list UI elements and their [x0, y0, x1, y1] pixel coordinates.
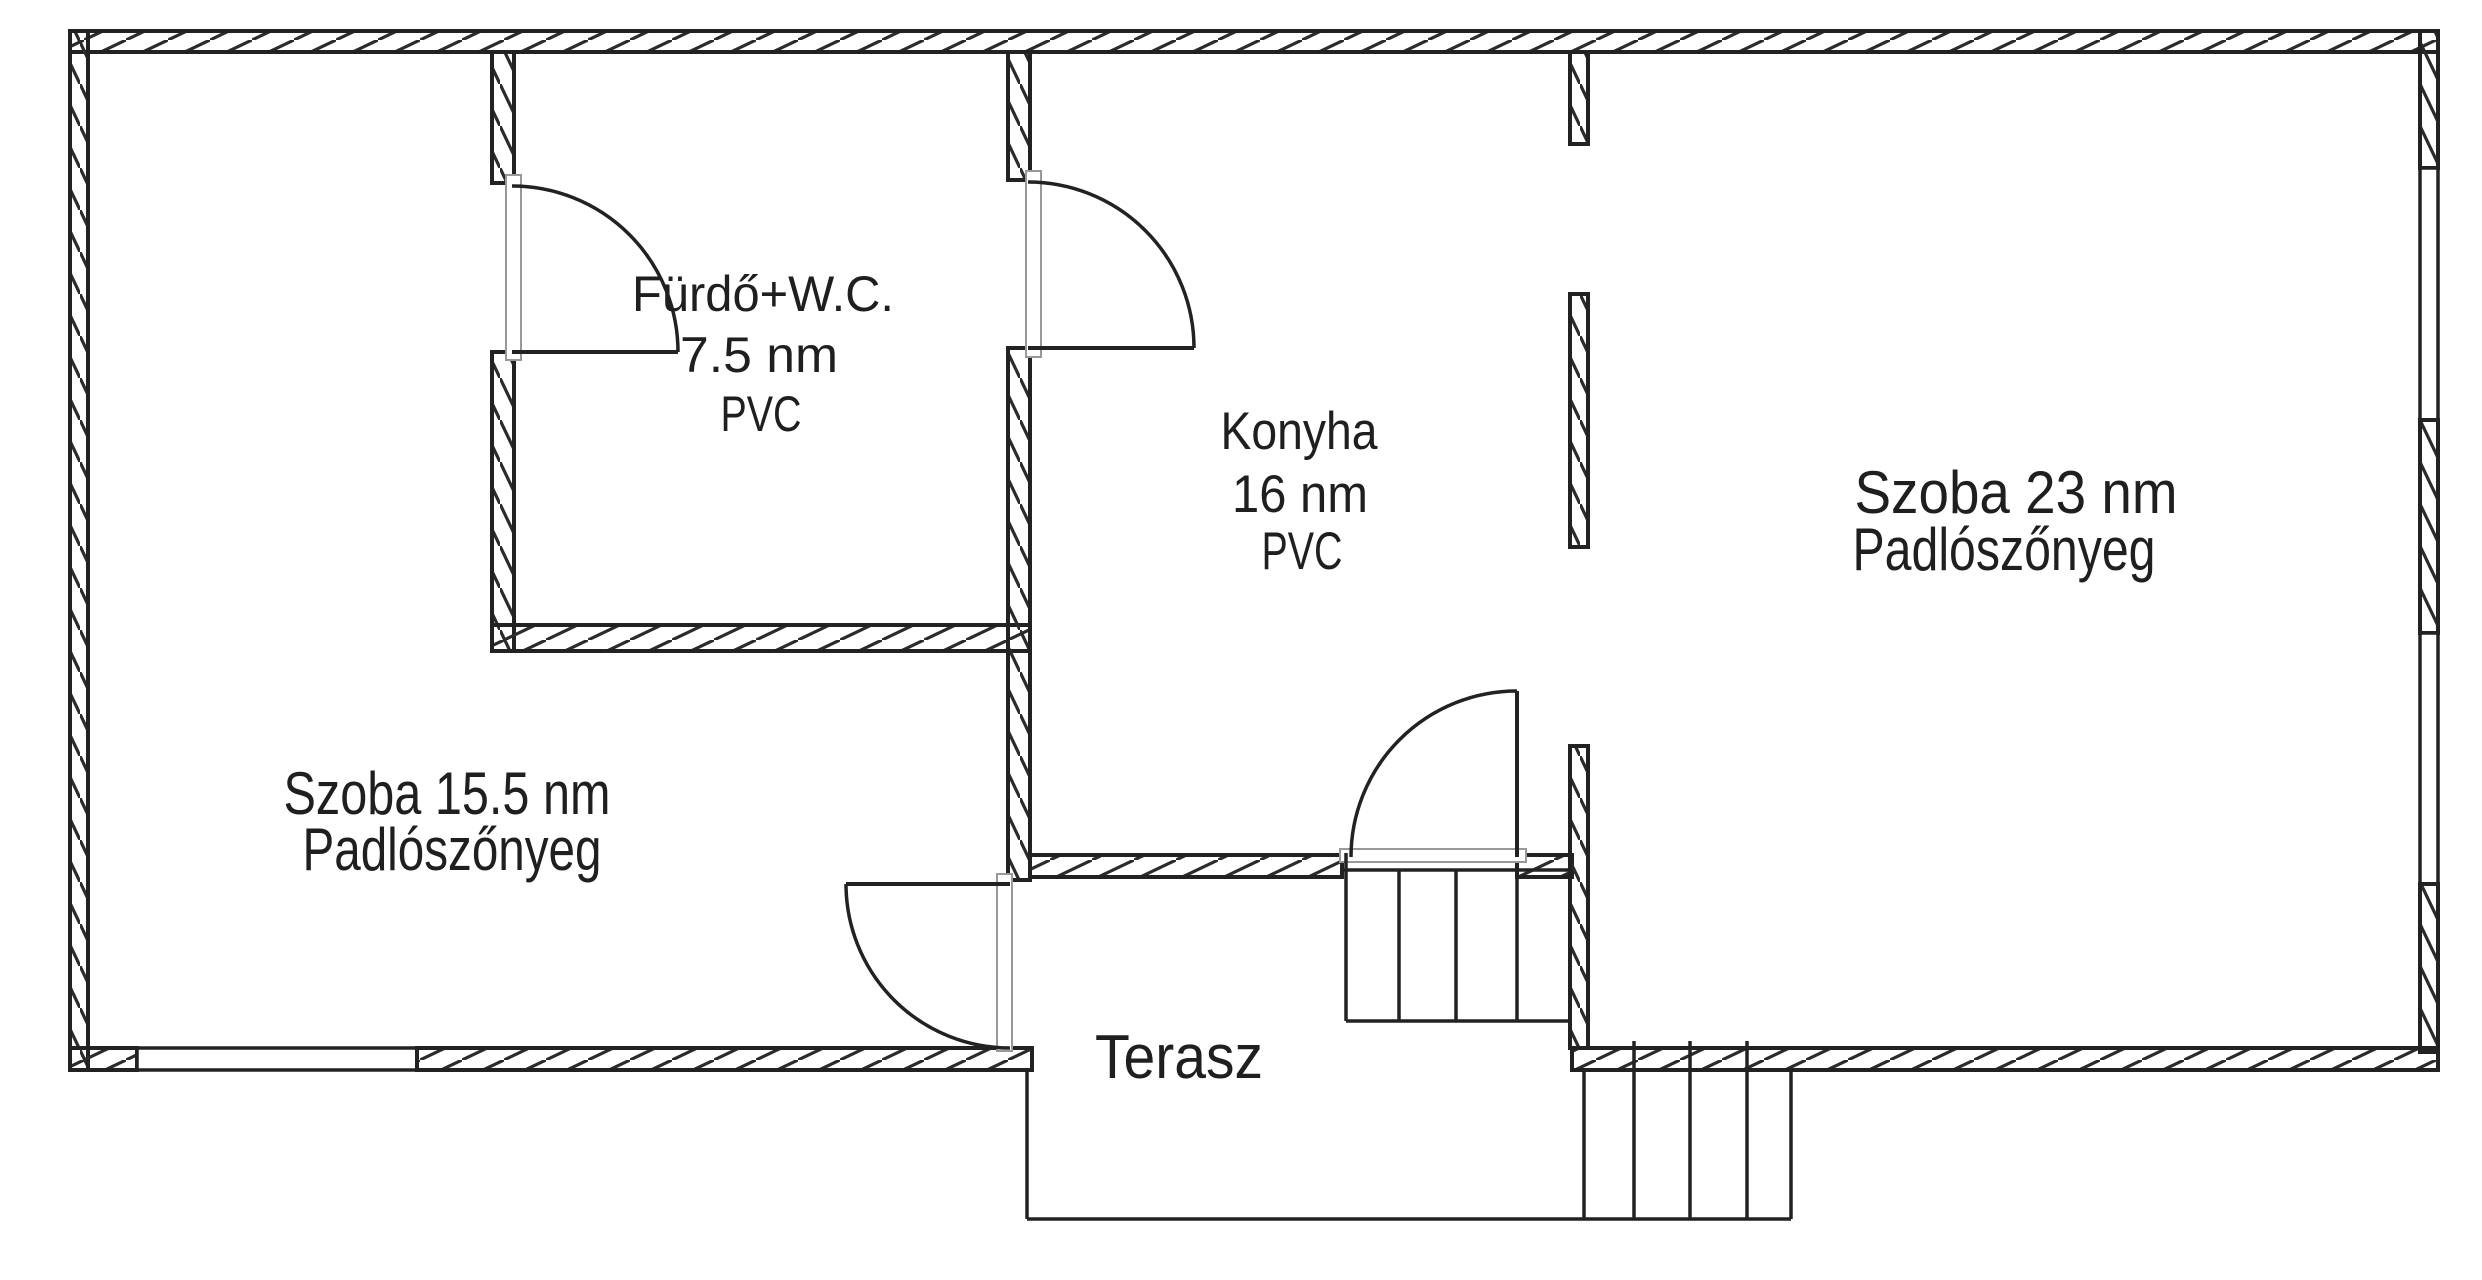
svg-text:Padlószőnyeg: Padlószőnyeg [1853, 516, 2156, 583]
svg-text:Konyha: Konyha [1221, 402, 1378, 461]
svg-text:7.5 nm: 7.5 nm [680, 327, 838, 383]
svg-text:PVC: PVC [721, 386, 802, 442]
svg-text:16 nm: 16 nm [1232, 465, 1368, 524]
svg-text:Fürdő+W.C.: Fürdő+W.C. [632, 266, 894, 322]
svg-text:Terasz: Terasz [1095, 1023, 1263, 1092]
svg-text:Padlószőnyeg: Padlószőnyeg [303, 816, 602, 883]
svg-text:PVC: PVC [1262, 522, 1343, 581]
